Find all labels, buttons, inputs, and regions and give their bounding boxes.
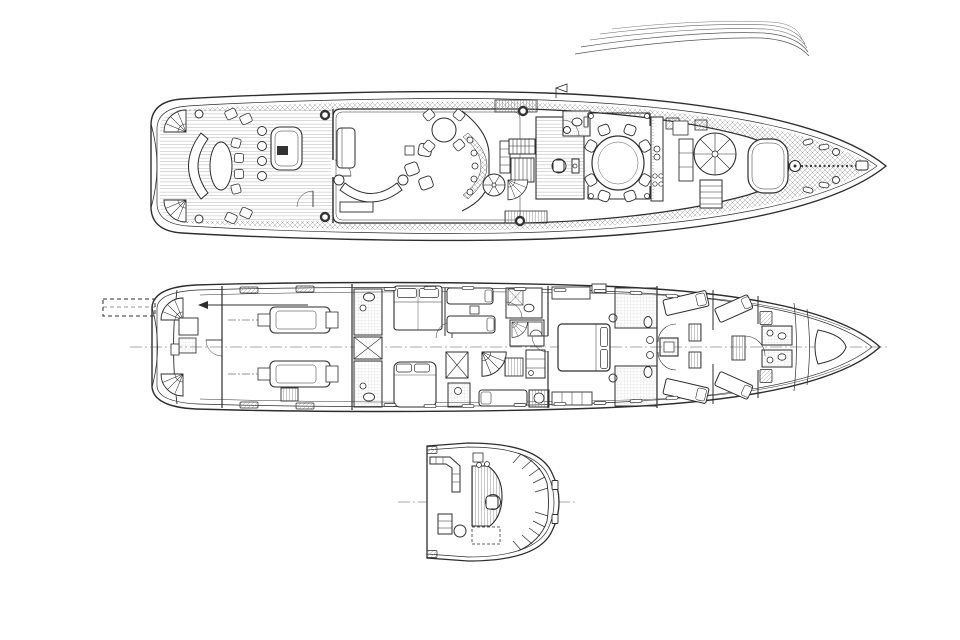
mooring-bitts-item (519, 107, 527, 115)
pantry-lockers (679, 139, 693, 181)
fairleads-item (833, 177, 840, 184)
hull-windows-stbd-item (462, 286, 474, 289)
mid-vanity (448, 383, 470, 407)
hull-windows-stbd-item (666, 294, 678, 298)
deck-edge-line (581, 33, 808, 52)
guest-bath-aft-sink (360, 305, 366, 311)
master-shower-inner (664, 342, 674, 352)
guest-bath-fwd-toilet (364, 393, 375, 401)
salon-sofa-aft (337, 128, 355, 168)
bar-stools-item (258, 172, 267, 181)
aft-dining-chairs-item (234, 169, 244, 179)
twin-bed-a-pillow (485, 290, 492, 302)
mooring-bitts-item (516, 217, 524, 225)
master-pillows-item (601, 350, 608, 369)
dining-table (592, 136, 644, 190)
atrium-portholes-item (472, 163, 478, 169)
hull-windows-stbd-item (630, 291, 642, 295)
nav-light-boxes-item (552, 515, 558, 524)
day-head-sink (564, 127, 571, 134)
aft-dining-chairs-item (234, 153, 244, 163)
main-deck (151, 84, 889, 246)
console-instruments-item (477, 463, 482, 468)
engine-port-head (326, 366, 338, 382)
garage-box (171, 344, 179, 355)
salon-side-table (405, 146, 414, 155)
hull-windows-port-item (630, 399, 642, 403)
hull-windows-port-item (594, 401, 606, 404)
yacht-general-arrangement-drawing (0, 0, 960, 640)
corner-pads-item (427, 447, 437, 454)
crew-lockers-item (760, 312, 772, 325)
guest-bath-fwd-sink (360, 383, 366, 389)
bow-roller (856, 161, 868, 170)
helm-chair-seat (486, 496, 498, 509)
crew-lockers-item (760, 370, 772, 383)
aft-dining-chairs-item (230, 183, 241, 194)
galley-stove-burners-item (659, 174, 663, 178)
hull-windows-stbd-item (384, 288, 396, 291)
atrium-portholes-item (467, 137, 473, 143)
salon-end-tables-item (398, 175, 408, 185)
dining-corner-posts-item (589, 114, 594, 119)
console-equipment (473, 453, 483, 462)
bar-stools-item (258, 157, 267, 166)
foredeck-spiral-center (712, 151, 718, 157)
crew-wc-port-toilet (778, 354, 786, 360)
garage-grating (179, 338, 196, 353)
deck-edge-line (612, 21, 802, 40)
garage-locker (179, 318, 198, 335)
hull-windows-stbd-item (424, 286, 436, 289)
twin-bed-b-pillow (487, 318, 494, 331)
galley-sinks-item (654, 154, 660, 160)
bridge-cabinet (438, 514, 452, 534)
bar-stools-item (258, 127, 267, 136)
atrium-portholes-item (471, 176, 477, 182)
bar-stools-item (258, 142, 267, 151)
master-bath-stbd-toilet (644, 317, 652, 328)
aft-table-oval (210, 142, 232, 190)
bow-seat-island (748, 139, 788, 193)
master-door-gap (546, 336, 550, 351)
mid-vanity-sink (455, 388, 462, 395)
deck-vents-item (296, 286, 314, 292)
day-head-toilet (572, 118, 582, 126)
crew-wc-port-sink (767, 357, 773, 363)
lower-deck (103, 283, 890, 412)
bow-stair (732, 336, 745, 360)
day-head-cistern (584, 117, 588, 127)
bridge-stool (454, 525, 466, 537)
crew-wc-stbd-sink (767, 330, 773, 336)
hull-windows-stbd-item (514, 288, 526, 291)
engine-stbd-head (326, 312, 338, 328)
galley-stove-burners-item (653, 174, 657, 178)
galley-cabinet (673, 121, 688, 135)
spiral-stair-center (492, 183, 496, 187)
atrium-portholes-item (471, 150, 477, 156)
master-bath-port-toilet (644, 367, 652, 378)
hull-windows-port-item (514, 404, 526, 407)
sun-deck-cropped-edge (575, 21, 809, 56)
deck-hatch (695, 120, 707, 130)
guest-bath-aft-toilet (364, 293, 375, 301)
deck-vents-item (240, 287, 258, 293)
laundry-drum (534, 393, 544, 403)
master-bath-stbd-sink (647, 337, 654, 344)
aft-dining-chairs-item (230, 137, 241, 148)
gearbox-port (258, 368, 270, 380)
gearbox-stbd (258, 314, 270, 326)
console-instruments-item (485, 462, 490, 467)
crew-stair-fwd (689, 352, 701, 368)
er-ladder (281, 388, 298, 401)
flag-pennant (556, 84, 567, 92)
guest-double-pillows-item (415, 364, 430, 372)
atrium-portholes-item (467, 189, 473, 195)
hull-windows-stbd-item (554, 288, 566, 291)
aft-bar-equipment (277, 146, 288, 155)
mid-bath-aft-toilet (524, 304, 534, 312)
passerelle-dashed (103, 299, 155, 316)
stair-flight-down (511, 158, 534, 182)
twin-nightstand (470, 306, 479, 314)
mooring-bitts-item (321, 213, 329, 221)
hull-windows-stbd-item (594, 289, 606, 292)
crew-wc-stbd (762, 326, 792, 345)
crew-stair-aft (689, 324, 701, 341)
lobby-stair-flight (505, 358, 523, 376)
deck-vents-item (240, 402, 258, 408)
guest-double-pillows-item (397, 364, 412, 372)
salon-door-gap (331, 160, 335, 177)
crew-wc-stbd-toilet (778, 333, 786, 339)
vip-pillows-item (398, 289, 417, 298)
crew-wc-port (762, 350, 792, 367)
hull-windows-port-item (666, 396, 678, 400)
galley-stove-burners-item (659, 182, 663, 186)
nav-light-boxes-item (552, 481, 558, 490)
sidedeck-steps-port (505, 211, 547, 223)
galley-sinks-item (654, 146, 660, 152)
fairleads-item (833, 149, 840, 156)
hull-windows-port-item (424, 404, 436, 407)
corner-pads-item (427, 551, 437, 558)
hull-windows-port-item (462, 404, 474, 407)
master-pillows-item (601, 328, 608, 347)
sidedeck-steps-stbd (495, 100, 537, 112)
deck-fittings-item (195, 215, 203, 223)
crew-berth-pillow (481, 392, 491, 404)
galley-stove-burners-item (653, 182, 657, 186)
dining-corner-posts-item (589, 194, 594, 199)
salon-cabinet (340, 202, 373, 212)
windlass-center (794, 165, 797, 168)
deck-plans-canvas (0, 0, 960, 640)
master-bath-port-sink (647, 352, 654, 359)
deck-fittings-item (195, 110, 203, 118)
breakfast-table (432, 118, 456, 142)
deck-vents-item (296, 403, 314, 409)
hull-windows-port-item (384, 404, 396, 407)
dining-corner-posts-item (645, 194, 650, 199)
mooring-bitts-item (321, 111, 329, 119)
hull-windows-port-item (554, 402, 566, 405)
helm-chair-seat (553, 160, 564, 172)
dining-corner-posts-item (645, 114, 650, 119)
salon-end-tables-item (334, 175, 344, 185)
wheelhouse-deck (398, 443, 575, 561)
deck-edge-line (575, 38, 809, 56)
